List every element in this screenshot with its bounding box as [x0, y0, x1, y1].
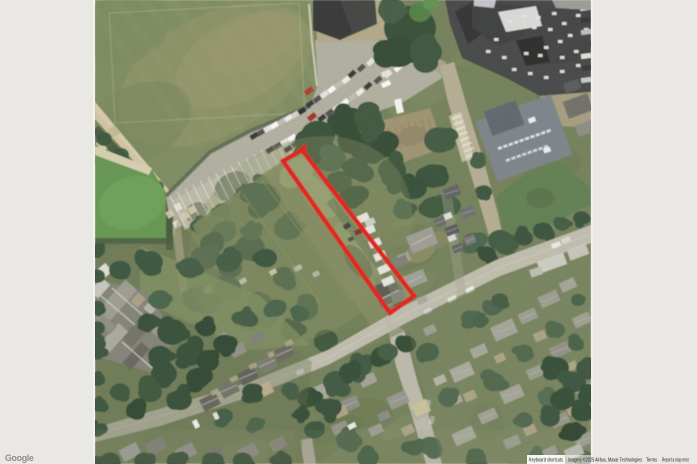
svg-text:Report a map error: Report a map error	[662, 457, 689, 463]
svg-text:Google: Google	[5, 453, 34, 463]
svg-text:Terms: Terms	[646, 457, 657, 463]
svg-text:Imagery ©2025 Airbus, Maxar Te: Imagery ©2025 Airbus, Maxar Technologies	[568, 456, 642, 463]
svg-text:Keyboard shortcuts: Keyboard shortcuts	[529, 457, 563, 463]
